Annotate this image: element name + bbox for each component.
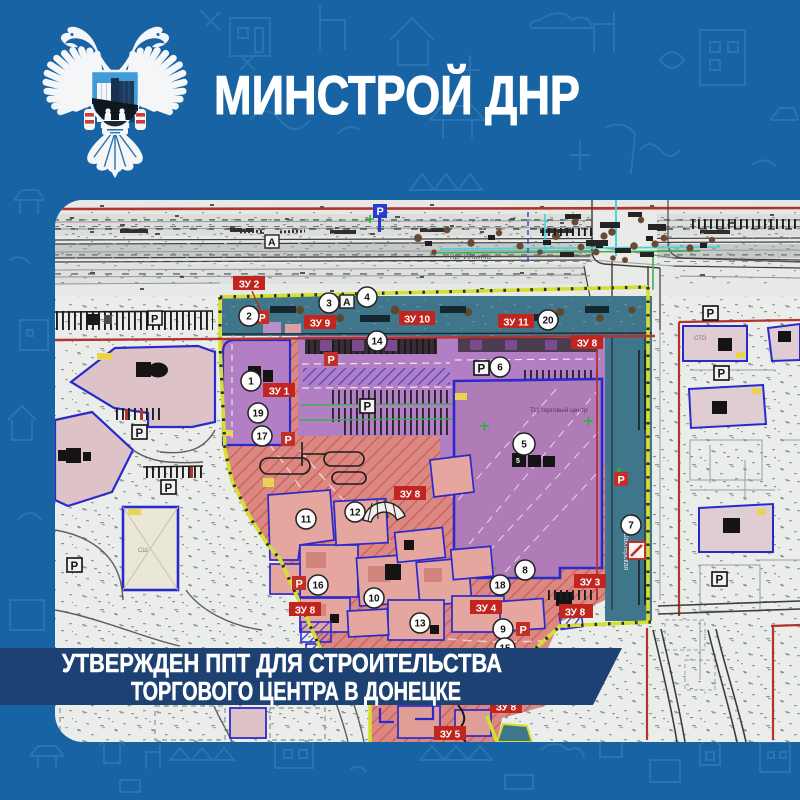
svg-text:7: 7 bbox=[628, 521, 634, 532]
svg-text:P: P bbox=[136, 428, 144, 440]
svg-text:ТЦ торговый центр: ТЦ торговый центр bbox=[530, 406, 588, 414]
svg-text:17: 17 bbox=[256, 432, 268, 443]
svg-text:P: P bbox=[520, 625, 527, 637]
svg-text:19: 19 bbox=[252, 409, 264, 420]
svg-text:3: 3 bbox=[326, 299, 332, 310]
svg-text:14: 14 bbox=[371, 337, 383, 348]
svg-text:P: P bbox=[165, 483, 173, 495]
svg-text:P: P bbox=[151, 314, 158, 326]
svg-text:ЗУ 8: ЗУ 8 bbox=[295, 606, 316, 617]
svg-text:P: P bbox=[296, 579, 303, 591]
svg-text:ЗУ 8: ЗУ 8 bbox=[400, 490, 421, 501]
svg-text:4: 4 bbox=[364, 293, 370, 304]
svg-text:ЗУ 3: ЗУ 3 bbox=[580, 578, 601, 589]
svg-text:ЗУ 10: ЗУ 10 bbox=[404, 315, 430, 326]
svg-text:16: 16 bbox=[312, 581, 324, 592]
svg-text:P: P bbox=[364, 402, 372, 414]
svg-text:СТО: СТО bbox=[694, 336, 707, 342]
svg-text:9: 9 bbox=[500, 625, 506, 636]
svg-text:P: P bbox=[71, 561, 79, 573]
svg-text:ЗУ 8: ЗУ 8 bbox=[565, 608, 586, 619]
svg-text:18: 18 bbox=[494, 581, 506, 592]
svg-text:P: P bbox=[707, 309, 715, 321]
svg-text:P: P bbox=[285, 435, 292, 447]
svg-text:6: 6 bbox=[497, 363, 503, 374]
svg-text:8: 8 bbox=[522, 566, 528, 577]
svg-text:5: 5 bbox=[521, 440, 527, 451]
svg-text:P: P bbox=[478, 364, 486, 376]
svg-text:А: А bbox=[343, 297, 351, 309]
svg-text:ЗУ 2: ЗУ 2 bbox=[239, 280, 260, 291]
svg-text:20: 20 bbox=[542, 316, 554, 327]
svg-text:13: 13 bbox=[414, 619, 426, 630]
svg-text:УТВЕРЖДЕН ППТ ДЛЯ СТРОИТЕЛЬСТВ: УТВЕРЖДЕН ППТ ДЛЯ СТРОИТЕЛЬСТВА bbox=[62, 648, 502, 678]
svg-text:ТОРГОВОГО ЦЕНТРА В ДОНЕЦКЕ: ТОРГОВОГО ЦЕНТРА В ДОНЕЦКЕ bbox=[131, 676, 461, 706]
svg-text:P: P bbox=[377, 206, 384, 218]
svg-text:ЗУ 11: ЗУ 11 bbox=[503, 318, 529, 329]
svg-text:2: 2 bbox=[246, 312, 252, 323]
svg-text:5: 5 bbox=[516, 458, 520, 465]
svg-text:ЗУ 4: ЗУ 4 bbox=[476, 604, 497, 615]
svg-text:ЗУ 1: ЗУ 1 bbox=[269, 387, 290, 398]
svg-text:ЗУ 5: ЗУ 5 bbox=[440, 730, 461, 741]
svg-text:P: P bbox=[716, 575, 724, 587]
svg-text:ЗУ 9: ЗУ 9 bbox=[310, 319, 331, 330]
svg-text:1: 1 bbox=[248, 377, 254, 388]
svg-text:10: 10 bbox=[368, 594, 380, 605]
svg-text:МИНСТРОЙ ДНР: МИНСТРОЙ ДНР bbox=[214, 63, 580, 126]
svg-text:А: А bbox=[268, 237, 276, 249]
svg-text:P: P bbox=[718, 369, 726, 381]
svg-text:ЗУ 8: ЗУ 8 bbox=[577, 339, 598, 350]
svg-text:P: P bbox=[618, 475, 625, 487]
svg-text:12: 12 bbox=[349, 508, 361, 519]
svg-text:11: 11 bbox=[301, 515, 312, 526]
svg-text:СШ: СШ bbox=[138, 548, 148, 554]
svg-text:P: P bbox=[328, 355, 335, 367]
